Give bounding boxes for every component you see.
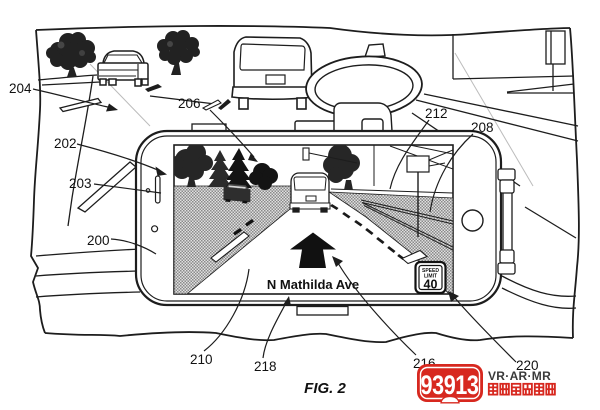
svg-text:206: 206	[178, 96, 201, 111]
svg-text:212: 212	[425, 106, 448, 121]
svg-text:210: 210	[190, 352, 213, 367]
svg-text:208: 208	[471, 120, 494, 135]
svg-text:202: 202	[54, 136, 77, 151]
svg-text:40: 40	[424, 278, 438, 292]
svg-text:VR·AR·MR: VR·AR·MR	[488, 369, 551, 383]
svg-text:218: 218	[254, 359, 277, 374]
svg-text:FIG. 2: FIG. 2	[304, 380, 346, 397]
svg-text:204: 204	[9, 81, 32, 96]
svg-text:N Mathilda Ave: N Mathilda Ave	[267, 277, 359, 292]
svg-text:203: 203	[69, 176, 92, 191]
svg-text:200: 200	[87, 233, 110, 248]
